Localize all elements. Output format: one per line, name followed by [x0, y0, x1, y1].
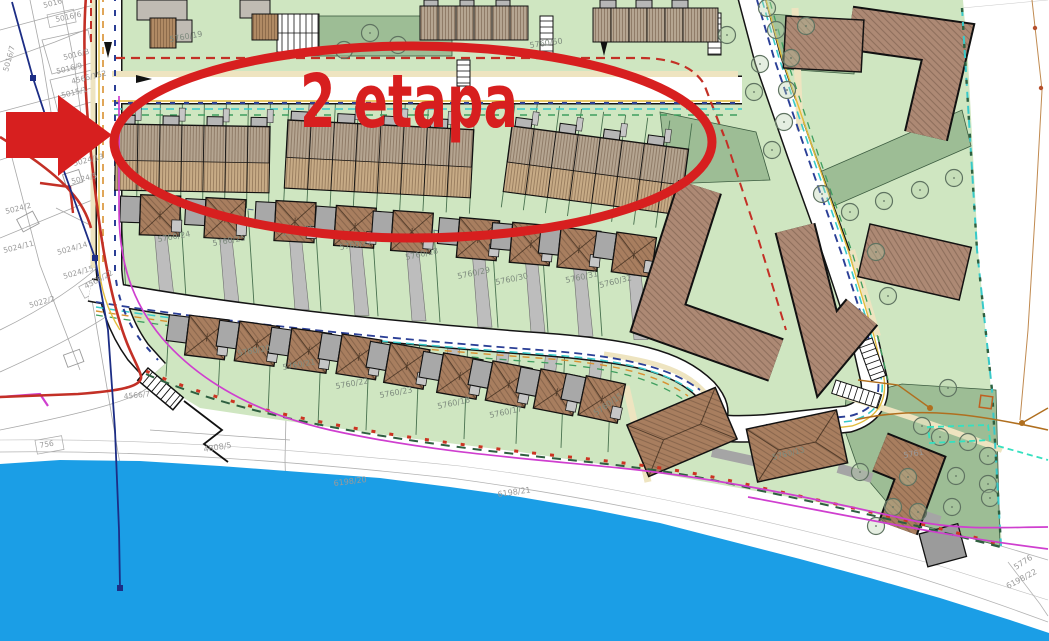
- parking-strip: [277, 14, 319, 52]
- parcel-label: 4566/7: [123, 389, 150, 401]
- tree-icon: [783, 50, 800, 67]
- tree-icon: [944, 499, 961, 516]
- parcel-label: 5016/7: [1, 44, 17, 72]
- site-plan-map: 50165016/65016/85016/94566/1525015/15016…: [0, 0, 1049, 641]
- parcel-label: 756: [39, 439, 55, 450]
- parcel-label: 5016/8: [62, 47, 90, 62]
- tree-icon: [779, 82, 796, 99]
- parcel-label: 5016: [42, 0, 63, 10]
- tree-icon: [940, 380, 957, 397]
- tree-icon: [768, 22, 785, 39]
- tree-icon: [885, 499, 902, 516]
- tree-icon: [912, 182, 929, 199]
- tree-icon: [876, 193, 893, 210]
- tree-icon: [752, 56, 769, 73]
- parcel-label: 5024/14: [56, 240, 89, 257]
- site-plan-svg: 50165016/65016/85016/94566/1525015/15016…: [0, 0, 1049, 641]
- parcel-label: 5016/9: [55, 61, 83, 76]
- tree-icon: [719, 27, 736, 44]
- tree-icon: [759, 0, 776, 17]
- tree-icon: [948, 468, 965, 485]
- tree-icon: [980, 448, 997, 465]
- tree-icon: [842, 204, 859, 221]
- tree-icon: [814, 186, 831, 203]
- tree-icon: [798, 18, 815, 35]
- tree-icon: [900, 469, 917, 486]
- stage-2-label: 2 etapa: [300, 59, 518, 145]
- tree-icon: [852, 464, 869, 481]
- tree-icon: [946, 170, 963, 187]
- tree-icon: [982, 490, 999, 507]
- parcel-label: 4808/5: [203, 441, 232, 454]
- tree-icon: [776, 114, 793, 131]
- tree-icon: [914, 418, 931, 435]
- tree-icon: [880, 288, 897, 305]
- tree-icon: [746, 84, 763, 101]
- parcel-label: 6198/22: [1005, 567, 1039, 591]
- parcel-label: 5016/6: [55, 10, 83, 24]
- tree-icon: [868, 244, 885, 261]
- parcel-label: 5024/11: [2, 239, 35, 255]
- tree-icon: [910, 504, 927, 521]
- tree-icon: [764, 142, 781, 159]
- tree-icon: [362, 25, 379, 42]
- parcel-label: 5015/1: [60, 85, 88, 100]
